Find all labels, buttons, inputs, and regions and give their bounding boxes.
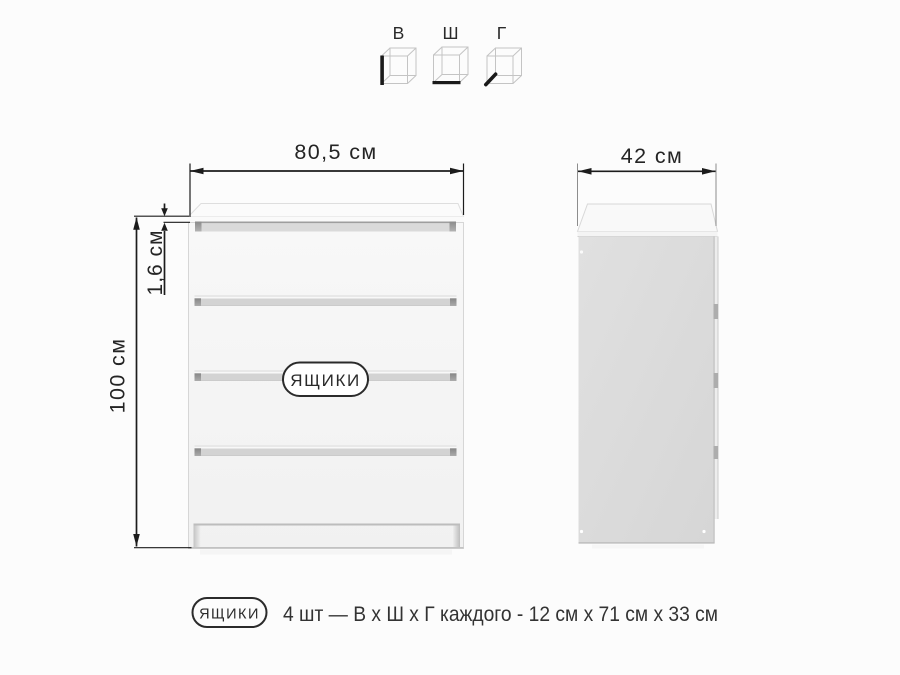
svg-text:100 см: 100 см (106, 338, 130, 414)
svg-text:42 см: 42 см (621, 144, 683, 168)
svg-text:Г: Г (497, 23, 507, 43)
svg-text:80,5 см: 80,5 см (294, 140, 377, 164)
svg-text:ЯЩИКИ: ЯЩИКИ (290, 371, 361, 390)
svg-text:ЯЩИКИ: ЯЩИКИ (199, 607, 260, 623)
svg-text:Ш: Ш (442, 23, 458, 43)
svg-text:4 шт — В х Ш х Г каждого - 12: 4 шт — В х Ш х Г каждого - 12 см х 71 см… (283, 602, 718, 626)
svg-text:1,6 см: 1,6 см (144, 230, 167, 296)
svg-text:В: В (393, 23, 405, 43)
